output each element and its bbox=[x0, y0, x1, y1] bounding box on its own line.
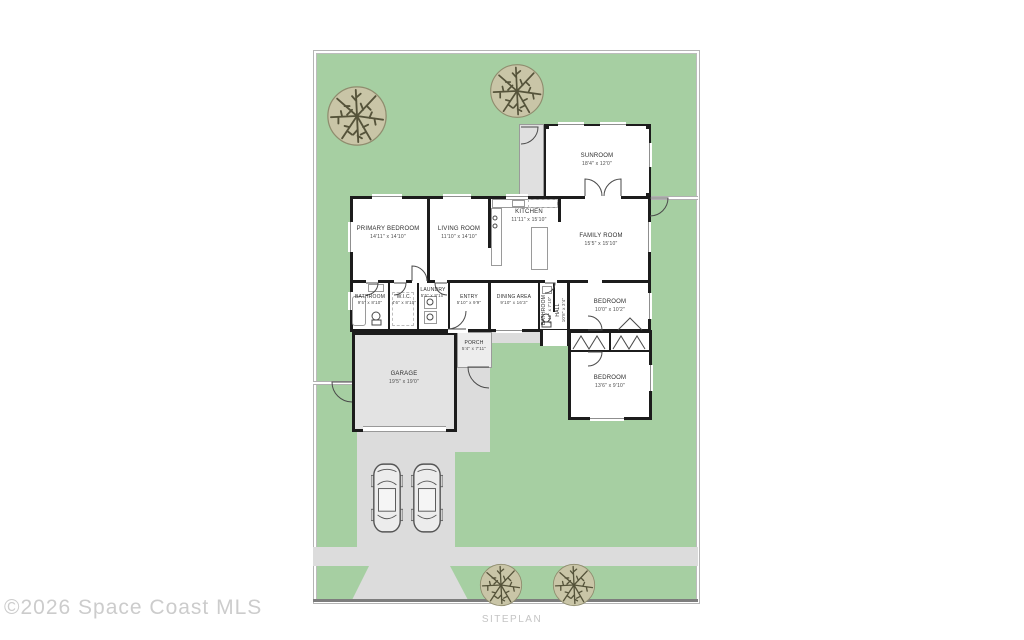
window-icon bbox=[648, 365, 653, 391]
room-label-laundry: LAUNDRY5'5" x 8'10" bbox=[420, 287, 445, 299]
wall bbox=[558, 196, 561, 222]
front-door-opening bbox=[448, 329, 468, 333]
room-label-bathroom: BATHROOM9'5" x 8'10" bbox=[355, 294, 385, 306]
window-icon bbox=[646, 222, 651, 252]
tree-icon bbox=[479, 563, 523, 607]
tree-icon bbox=[489, 63, 545, 119]
window-icon bbox=[558, 122, 584, 127]
wall bbox=[448, 282, 450, 330]
room-label-garage: GARAGE19'5" x 19'0" bbox=[389, 371, 419, 385]
door-opening bbox=[394, 280, 406, 283]
window-icon bbox=[647, 293, 652, 319]
room-label-hall: HALL10'8" x 3'4" bbox=[555, 298, 567, 323]
right-fence bbox=[650, 196, 698, 200]
front-walkway bbox=[455, 362, 490, 452]
room-label-family-room: FAMILY ROOM15'5" x 15'10" bbox=[579, 233, 622, 247]
room-label-primary-bedroom: PRIMARY BEDROOM14'11" x 14'10" bbox=[357, 226, 420, 240]
dryer bbox=[424, 311, 437, 324]
left-fence bbox=[313, 381, 353, 385]
door-opening bbox=[588, 280, 602, 283]
window-icon bbox=[443, 194, 471, 199]
room-label-dining-area: DINING AREA9'10" x 16'3" bbox=[497, 294, 531, 306]
door-opening bbox=[412, 280, 427, 283]
wall bbox=[488, 282, 491, 330]
siteplan-caption: SITEPLAN bbox=[0, 614, 1024, 625]
wall bbox=[567, 282, 570, 330]
window-icon bbox=[348, 222, 353, 252]
post-icon bbox=[544, 124, 549, 129]
rear-landing bbox=[519, 124, 544, 198]
room-label-bedroom: BEDROOM10'0" x 10'2" bbox=[594, 299, 626, 313]
door-opening bbox=[366, 280, 378, 283]
wall bbox=[538, 282, 540, 330]
post-icon bbox=[646, 124, 651, 129]
siteplan-canvas: SUNROOM18'4" x 12'0" KITCHEN11'11" x 15'… bbox=[0, 0, 1024, 640]
room-label-wic: W.I.C.4'6" x 8'10" bbox=[392, 294, 417, 306]
tree-icon bbox=[326, 85, 388, 147]
bathroom-sink bbox=[542, 286, 552, 294]
window-icon bbox=[496, 328, 522, 333]
upper-cabinets bbox=[528, 199, 558, 208]
door-opening bbox=[545, 280, 557, 283]
room-label-living-room: LIVING ROOM11'10" x 14'10" bbox=[438, 226, 480, 240]
window-icon bbox=[590, 416, 624, 421]
wall bbox=[427, 196, 430, 282]
wall bbox=[417, 282, 419, 330]
room-label-bathroom-2: BATHROOM4'11" x 7'10" bbox=[541, 295, 553, 325]
window-icon bbox=[647, 143, 652, 167]
room-label-entry: ENTRY5'10" x 9'9" bbox=[457, 294, 482, 306]
kitchen-island bbox=[531, 227, 548, 270]
tree-icon bbox=[552, 563, 596, 607]
closet-wall bbox=[609, 332, 611, 352]
car-icon bbox=[411, 461, 443, 535]
post-icon bbox=[646, 193, 651, 198]
door-opening bbox=[435, 280, 447, 283]
kitchen-counter bbox=[491, 208, 502, 266]
room-label-sunroom: SUNROOM18'4" x 12'0" bbox=[581, 153, 614, 167]
bathroom-vanity bbox=[368, 284, 384, 292]
patio-door-opening bbox=[585, 196, 621, 199]
room-label-kitchen: KITCHEN11'11" x 15'10" bbox=[511, 209, 546, 223]
window-icon bbox=[372, 194, 402, 199]
hall-connector bbox=[540, 330, 570, 346]
wall bbox=[388, 282, 390, 330]
car-icon bbox=[371, 461, 403, 535]
window-icon bbox=[600, 122, 626, 127]
room-label-porch: PORCH5'4" x 7'11" bbox=[462, 340, 486, 352]
driveway-apron bbox=[352, 566, 468, 600]
room-label-bedroom-2: BEDROOM13'6" x 9'10" bbox=[594, 375, 626, 389]
kitchen-sink bbox=[512, 200, 525, 207]
garage-door bbox=[363, 426, 446, 432]
